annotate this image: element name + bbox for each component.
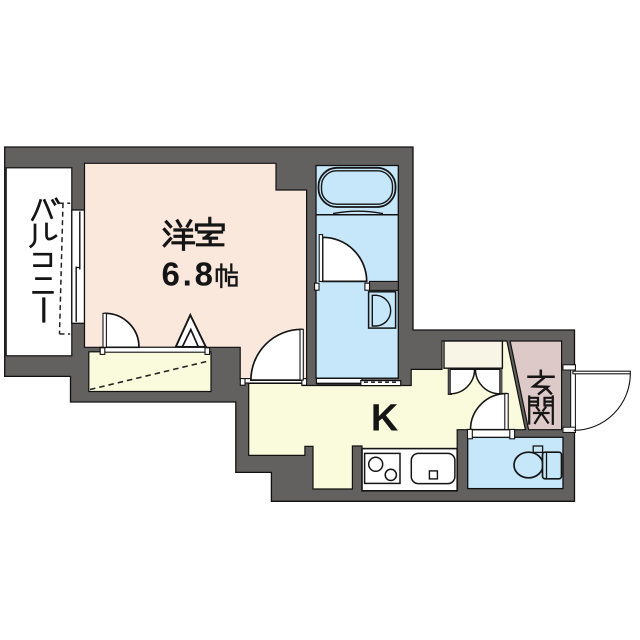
svg-text:6.8: 6.8	[162, 256, 216, 293]
svg-text:K: K	[371, 398, 399, 440]
